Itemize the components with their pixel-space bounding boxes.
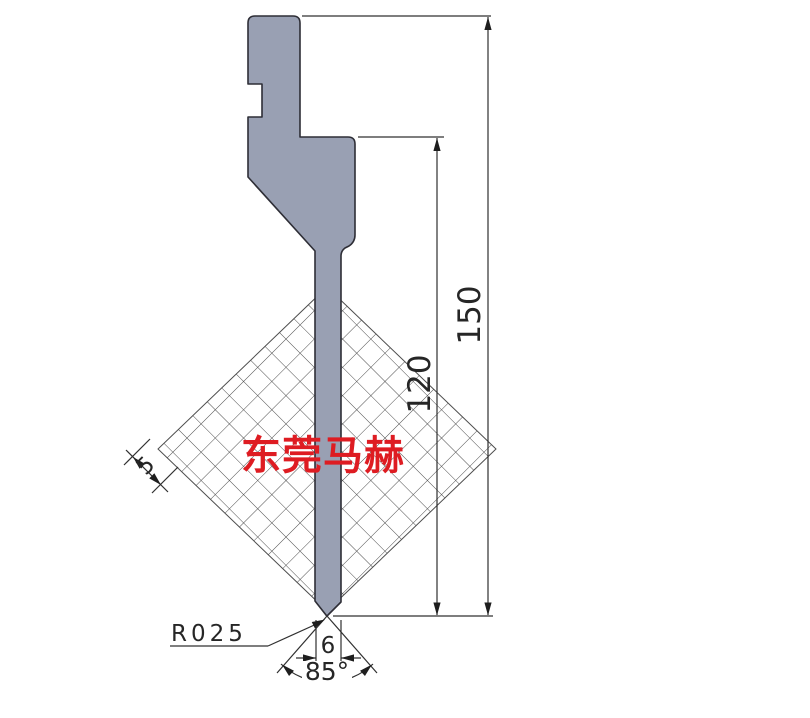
arrowhead (484, 603, 491, 616)
arrowhead (484, 17, 491, 30)
arrowhead (433, 603, 440, 616)
dim-tip-radius-label: R025 (171, 621, 247, 647)
dim-tip-angle-label: 85° (305, 657, 349, 686)
dim-working-height-label: 120 (402, 354, 438, 413)
dim-tip-width-label: 6 (321, 633, 336, 659)
watermark-text: 东莞马赫 (241, 433, 405, 479)
dim-total-height-label: 150 (452, 285, 488, 344)
arrowhead (433, 138, 440, 151)
technical-drawing: 150 120 5 6 85° R025 (0, 0, 810, 718)
drawing-canvas: 150 120 5 6 85° R025 东莞马赫 (0, 0, 810, 718)
dim-grid-pitch-label: 5 (132, 452, 161, 481)
leader-line (268, 622, 321, 646)
arrowhead (312, 616, 327, 628)
